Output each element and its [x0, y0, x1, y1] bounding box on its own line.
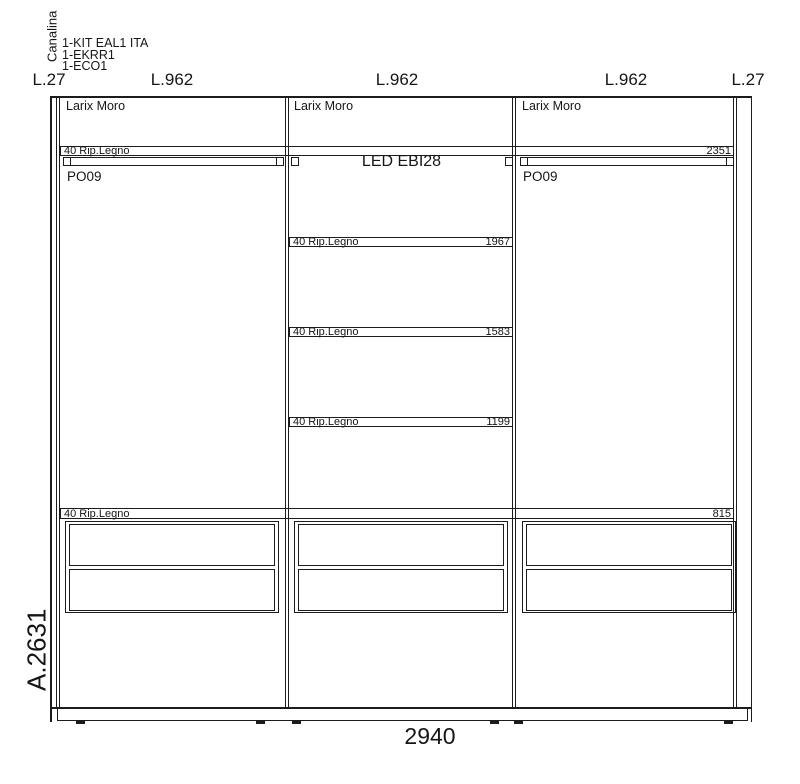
- shelf-1967-height: 1967: [486, 237, 510, 247]
- dim-width-left-panel: L.27: [26, 70, 72, 90]
- shelf-815-height: 815: [713, 509, 731, 519]
- shelf-1583-height: 1583: [486, 327, 510, 337]
- drawer-front: [526, 569, 732, 611]
- dim-overall-width: 2940: [355, 723, 505, 750]
- divider-panel-2: [512, 96, 516, 708]
- led-model-label: LED EBI28: [290, 153, 513, 171]
- foot-mark: [76, 721, 85, 724]
- drawer-front: [298, 524, 504, 566]
- cabinet-top-line: [50, 96, 752, 98]
- shelf-1199-height: 1199: [486, 417, 510, 427]
- foot-mark: [724, 721, 733, 724]
- material-label-left: Larix Moro: [66, 99, 125, 113]
- dim-overall-height: A.2631: [20, 588, 54, 712]
- material-label-right: Larix Moro: [522, 99, 581, 113]
- door-code-right: PO09: [523, 169, 558, 184]
- shelf-2351-height: 2351: [707, 146, 731, 156]
- led-strip-left: [63, 157, 284, 166]
- led-strip-right: [520, 157, 734, 166]
- dim-width-right-panel: L.27: [726, 70, 770, 90]
- foot-mark: [292, 721, 301, 724]
- drawer-front: [69, 524, 275, 566]
- shelf-1967: 40 Rip.Legno 1967: [289, 237, 513, 247]
- dim-width-section-3: L.962: [591, 70, 661, 90]
- drawer-front: [69, 569, 275, 611]
- led-endcap-icon: [63, 157, 71, 166]
- foot-mark: [256, 721, 265, 724]
- drawer-stack-left: [65, 521, 279, 613]
- material-label-middle: Larix Moro: [294, 99, 353, 113]
- cabinet-outer-right-line: [751, 96, 753, 722]
- side-panel-left: [56, 96, 60, 708]
- shelf-815-label: 40 Rip.Legno: [64, 509, 129, 519]
- drawer-front: [526, 524, 732, 566]
- plinth: [57, 708, 748, 721]
- shelf-1583-label: 40 Rip.Legno: [293, 327, 358, 337]
- drawer-front: [298, 569, 504, 611]
- shelf-815: 40 Rip.Legno 815: [60, 508, 734, 519]
- shelf-1583: 40 Rip.Legno 1583: [289, 327, 513, 337]
- divider-panel-1: [285, 96, 289, 708]
- shelf-2351-label: 40 Rip.Legno: [64, 146, 129, 156]
- shelf-1199: 40 Rip.Legno 1199: [289, 417, 513, 427]
- door-code-left: PO09: [67, 169, 102, 184]
- drawer-stack-right: [522, 521, 736, 613]
- shelf-1199-label: 40 Rip.Legno: [293, 417, 358, 427]
- dim-width-section-1: L.962: [137, 70, 207, 90]
- led-endcap-icon: [276, 157, 284, 166]
- side-panel-right: [733, 96, 737, 708]
- shelf-1967-label: 40 Rip.Legno: [293, 237, 358, 247]
- drawer-stack-middle: [294, 521, 508, 613]
- led-endcap-icon: [520, 157, 528, 166]
- canalina-vertical-label: Canalina: [44, 5, 60, 68]
- dim-width-section-2: L.962: [362, 70, 432, 90]
- foot-mark: [514, 721, 523, 724]
